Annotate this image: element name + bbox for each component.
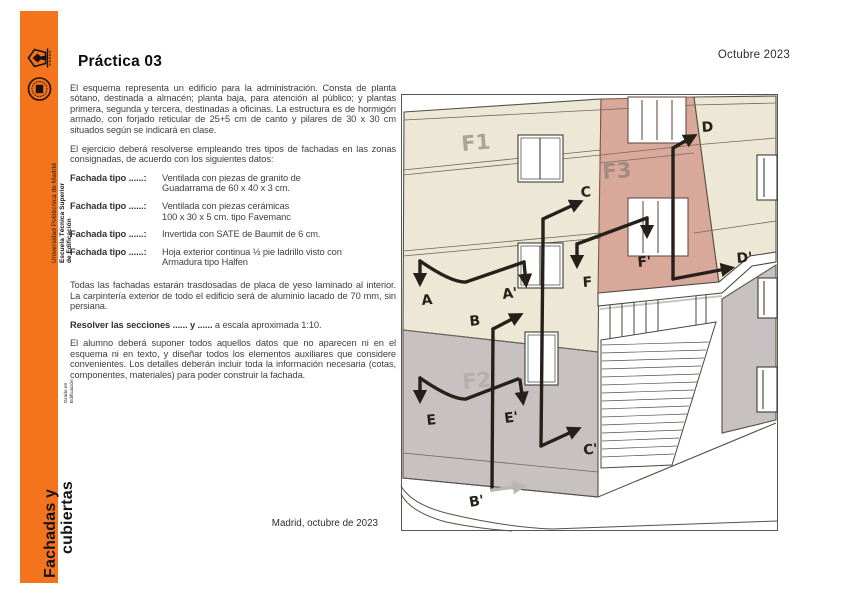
upm-crest-icon (26, 44, 53, 72)
section-mark-e2-label: E' (503, 409, 519, 427)
paragraph-resolver: Resolver las secciones ...... y ...... a… (70, 320, 396, 331)
zone-label-f1: F1 (460, 130, 491, 156)
footer-date: Madrid, octubre de 2023 (70, 518, 378, 529)
course-title-line1: Fachadas y (43, 372, 60, 578)
assignment-text-column: Práctica 03 El esquema representa un edi… (70, 57, 396, 389)
course-title-vertical-text: Fachadas y cubiertas (43, 372, 79, 578)
section-mark-d-label: D (701, 119, 714, 136)
school-name-line1: Escuela Técnica Superior (59, 117, 67, 263)
sidebar-band: Universidad Politécnica de Madrid Escuel… (20, 11, 58, 583)
paragraph-trasdosado: Todas las fachadas estarán trasdosadas d… (70, 280, 396, 312)
university-name: Universidad Politécnica de Madrid (51, 117, 59, 263)
section-mark-d2-label: D' (736, 250, 753, 267)
section-mark-f2-label: F' (637, 254, 652, 271)
section-mark-e-label: E (426, 412, 437, 429)
fachada-label: Fachada tipo ......: (70, 173, 162, 194)
paragraph-building-description: El esquema representa un edificio para l… (70, 83, 396, 136)
fachada-label: Fachada tipo ......: (70, 229, 162, 240)
section-mark-a-label: A (421, 292, 434, 309)
section-mark-a2-label: A' (501, 285, 518, 303)
paragraph-student-notes: El alumno deberá suponer todos aquellos … (70, 338, 396, 380)
fachada-item-4: Fachada tipo ......: Hoja exterior conti… (70, 247, 396, 268)
resolver-rest-text: a escala aproximada 1:10. (212, 320, 321, 330)
zone-label-f3: F3 (602, 158, 633, 184)
resolver-bold-text: Resolver las secciones ...... y ...... (70, 320, 212, 330)
building-axonometric-sketch: F1 F2 F3 (400, 93, 780, 533)
section-mark-f-label: F (582, 274, 593, 291)
course-title-line2: cubiertas (60, 372, 77, 578)
fachada-item-3: Fachada tipo ......: Invertida con SATE … (70, 229, 396, 240)
section-mark-b-label: B (469, 313, 481, 330)
school-seal-icon (26, 75, 53, 103)
fachada-label: Fachada tipo ......: (70, 201, 162, 222)
section-mark-c-label: C (580, 184, 591, 201)
practica-03-sheet: Universidad Politécnica de Madrid Escuel… (0, 0, 848, 599)
fachada-description: Invertida con SATE de Baumit de 6 cm. (162, 229, 396, 240)
header-date: Octubre 2023 (668, 49, 790, 61)
section-mark-c2-label: C' (582, 441, 599, 459)
fachada-description: Hoja exterior continua ½ pie ladrillo vi… (162, 247, 396, 268)
fachada-label: Fachada tipo ......: (70, 247, 162, 268)
fachada-item-2: Fachada tipo ......: Ventilada con pieza… (70, 201, 396, 222)
page-title: Práctica 03 (78, 57, 396, 68)
paragraph-exercise-intro: El ejercicio deberá resolverse empleando… (70, 144, 396, 165)
fachada-description: Ventilada con piezas cerámicas 100 x 30 … (162, 201, 396, 222)
fachada-description: Ventilada con piezas de granito de Guada… (162, 173, 396, 194)
section-mark-b2-label: B' (468, 493, 486, 511)
facade-f1-cream (403, 99, 601, 352)
fachada-item-1: Fachada tipo ......: Ventilada con pieza… (70, 173, 396, 194)
